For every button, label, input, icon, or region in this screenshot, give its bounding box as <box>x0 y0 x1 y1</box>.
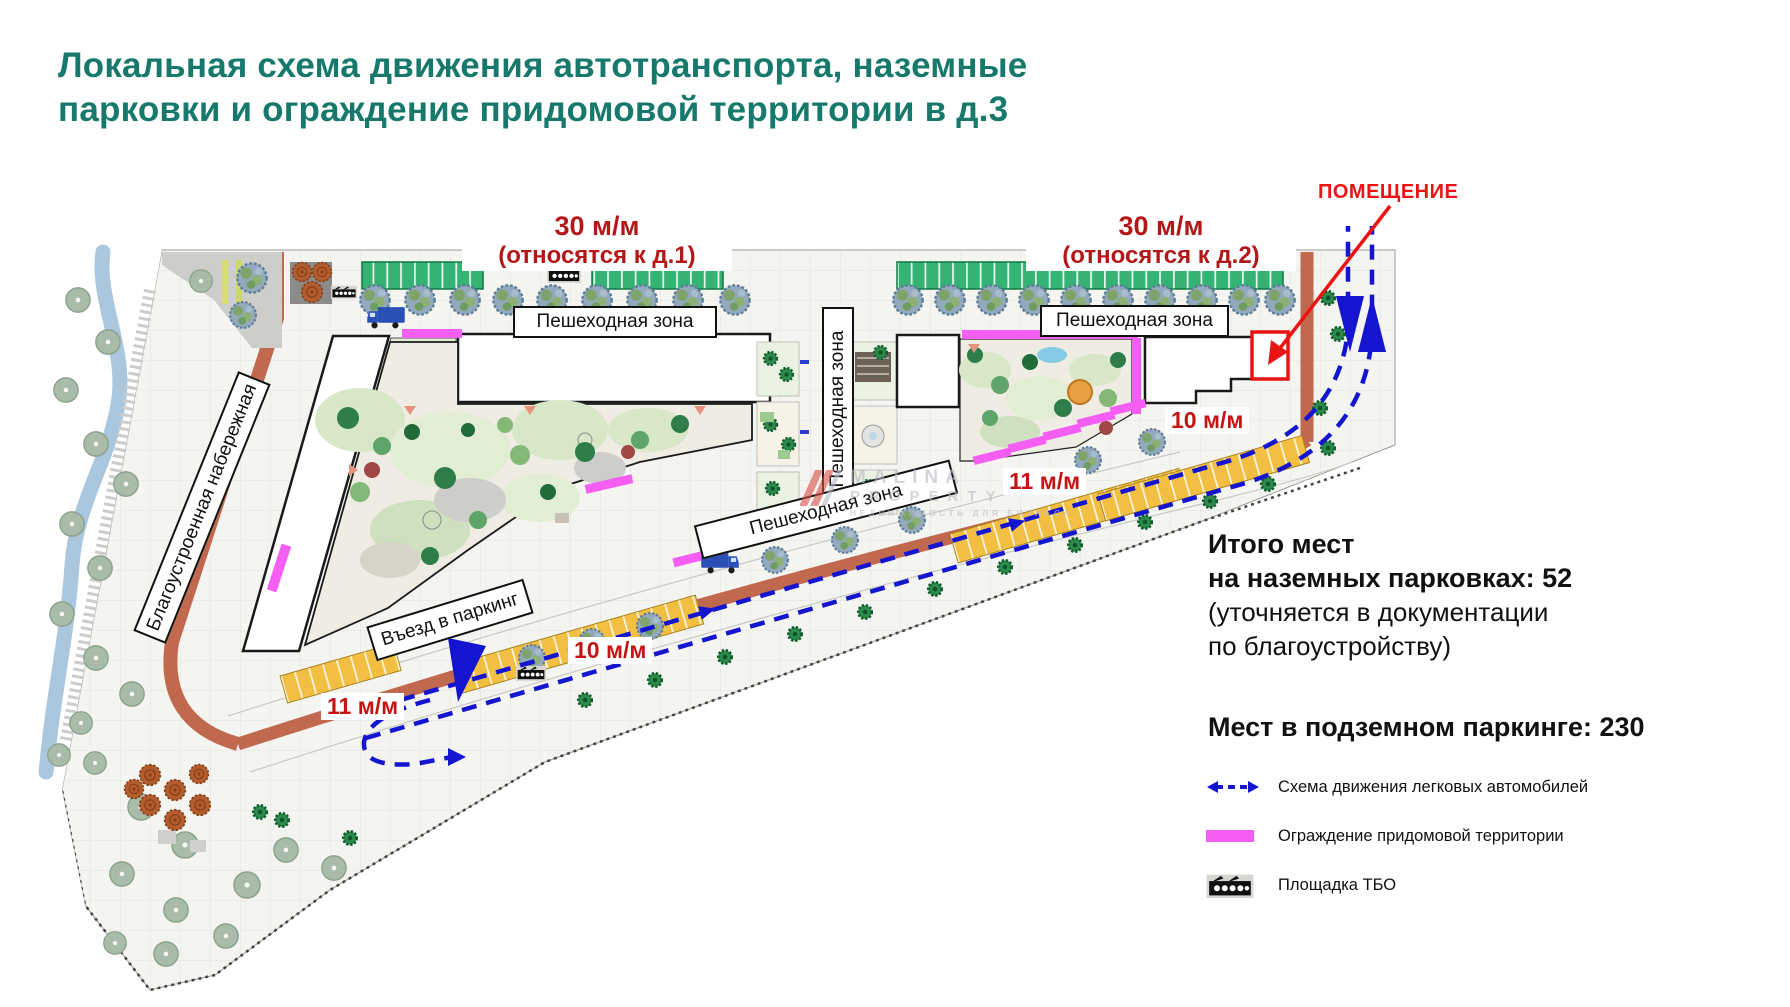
parking-30-label-d2: 30 м/м (относятся к д.2) <box>1026 210 1296 271</box>
legend: Схема движения легковых автомобилей Огра… <box>1206 772 1588 919</box>
parking-30-label-d1: 30 м/м (относятся к д.1) <box>462 210 732 271</box>
underground-parking-summary: Мест в подземном паркинге: 230 <box>1208 712 1645 743</box>
tbo-pad-icon <box>331 286 357 299</box>
legend-label: Площадка ТБО <box>1278 876 1396 895</box>
page-title-line2: парковки и ограждение придомовой террито… <box>58 88 1238 132</box>
legend-item-tbo: Площадка ТБО <box>1206 870 1588 900</box>
watermark-tagline: НЕДВИЖИМОСТЬ ДЛЯ БИЗНЕСА <box>850 508 1073 518</box>
legend-item-fence: Ограждение придомовой территории <box>1206 821 1588 851</box>
slide: Локальная схема движения автотранспорта,… <box>0 0 1790 1007</box>
page-title: Локальная схема движения автотранспорта,… <box>58 44 1238 132</box>
tbo-pad-icon <box>516 666 546 681</box>
watermark: MALINA PROPERTY НЕДВИЖИМОСТЬ ДЛЯ БИЗНЕСА <box>800 468 1073 518</box>
watermark-line2: PROPERTY <box>850 488 1073 505</box>
summary-line1: Итого мест <box>1208 527 1572 561</box>
watermark-logo-icon <box>800 468 842 508</box>
summary-line3: (уточняется в документации <box>1208 595 1572 629</box>
car-route-arrow-icon <box>1206 779 1264 795</box>
fence-line-icon <box>1206 830 1264 842</box>
legend-item-route: Схема движения легковых автомобилей <box>1206 772 1588 802</box>
summary-line4: по благоустройству) <box>1208 629 1572 663</box>
ped-zone-label-1: Пешеходная зона <box>513 306 717 338</box>
tbo-pad-icon <box>1206 872 1264 898</box>
summary-line2: на наземных парковках: 52 <box>1208 561 1572 595</box>
ped-zone-label-2: Пешеходная зона <box>1040 305 1229 337</box>
legend-label: Схема движения легковых автомобилей <box>1278 778 1588 797</box>
capacity-label-10a: 10 м/м <box>568 637 652 664</box>
capacity-label-10b: 10 м/м <box>1165 407 1249 434</box>
capacity-label-11a: 11 м/м <box>321 693 404 720</box>
parking-summary: Итого мест на наземных парковках: 52 (ут… <box>1208 527 1572 663</box>
pomeshchenie-label: ПОМЕЩЕНИЕ <box>1318 181 1458 204</box>
watermark-line1: MALINA <box>850 468 1073 488</box>
legend-label: Ограждение придомовой территории <box>1278 827 1564 846</box>
page-title-line1: Локальная схема движения автотранспорта,… <box>58 44 1238 88</box>
